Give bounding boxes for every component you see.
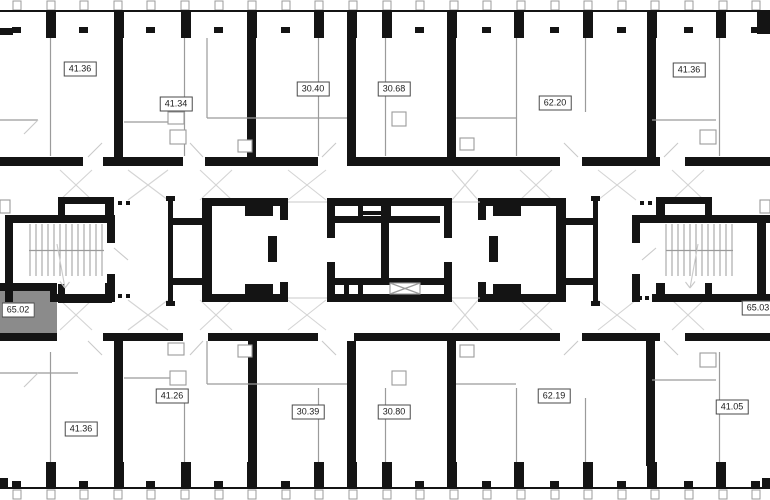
unit-area-label-bottom-1[interactable]: 41.36 <box>65 422 98 437</box>
unit-area-label-top-6[interactable]: 41.36 <box>673 63 706 78</box>
elevator-core-right <box>478 196 600 306</box>
elevator-core-left <box>166 196 288 306</box>
unit-area-label-bottom-4[interactable]: 30.80 <box>378 405 411 420</box>
shaft-crossed-box <box>390 283 420 294</box>
unit-area-label-bottom-2[interactable]: 41.26 <box>156 389 189 404</box>
unit-area-label-bottom-3[interactable]: 30.39 <box>292 405 325 420</box>
floor-plan: 41.3641.3430.4030.6862.2041.3665.0265.03… <box>0 0 770 500</box>
right-stairwell <box>632 197 770 302</box>
unit-area-label-top-2[interactable]: 41.34 <box>160 97 193 112</box>
corridor-wall-top <box>0 157 770 166</box>
corridor-wall-bottom <box>0 333 770 341</box>
unit-area-label-bottom-6[interactable]: 41.05 <box>716 400 749 415</box>
interior-partitions <box>0 38 733 462</box>
floor-plan-canvas <box>0 0 770 500</box>
bottom-facade-marks <box>12 462 760 499</box>
unit-area-label-mid-right[interactable]: 65.03 <box>742 301 770 316</box>
unit-divider-walls-bottom <box>114 341 655 466</box>
unit-area-label-top-3[interactable]: 30.40 <box>297 82 330 97</box>
unit-area-label-top-1[interactable]: 41.36 <box>64 62 97 77</box>
unit-area-label-mid-left[interactable]: 65.02 <box>2 303 35 318</box>
unit-area-label-bottom-5[interactable]: 62.19 <box>538 389 571 404</box>
unit-area-label-top-5[interactable]: 62.20 <box>539 96 572 111</box>
unit-area-label-top-4[interactable]: 30.68 <box>378 82 411 97</box>
